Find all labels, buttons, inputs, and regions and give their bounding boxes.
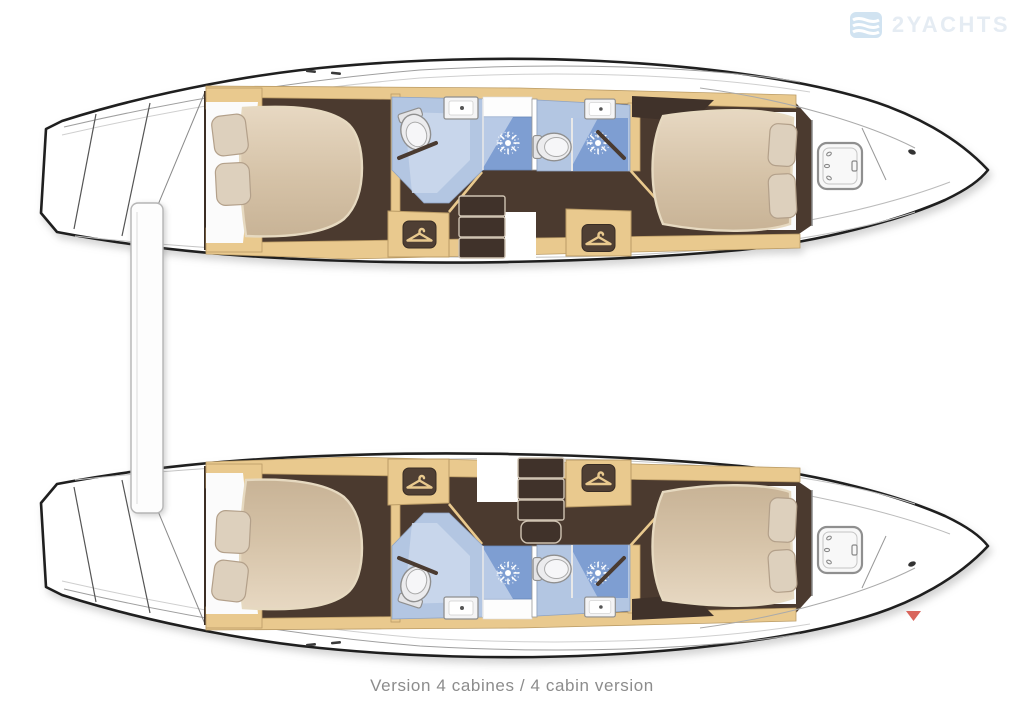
red-triangle-marker xyxy=(906,611,921,621)
wardrobe-hanger-icon xyxy=(582,465,615,492)
wardrobe-hanger-icon xyxy=(403,221,436,248)
wardrobe-hanger-icon xyxy=(582,225,615,252)
cabin-sole-gap xyxy=(477,457,518,502)
floorplan-svg xyxy=(0,0,1024,716)
companionway-landing xyxy=(521,521,561,543)
hull-bottom xyxy=(41,453,988,657)
companionway-steps xyxy=(518,458,564,520)
caption: Version 4 cabines / 4 cabin version xyxy=(0,676,1024,696)
companionway-steps xyxy=(459,196,505,258)
cabin-sole-gap xyxy=(505,212,536,258)
aft-crossbeam xyxy=(131,203,163,513)
hull-top xyxy=(41,59,988,263)
screenshot-root: 2YACHTS Version 4 cabines / 4 cabin vers… xyxy=(0,0,1024,716)
wardrobe-hanger-icon xyxy=(403,468,436,495)
